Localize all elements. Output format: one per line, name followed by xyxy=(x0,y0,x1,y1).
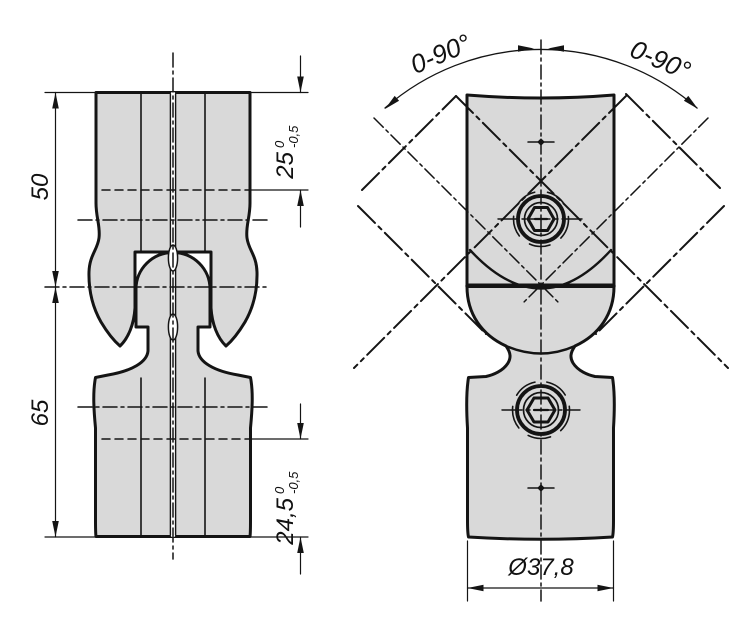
angle-right-label: 0-90° xyxy=(626,34,695,86)
dimension-50-65: 50 65 xyxy=(27,93,59,538)
drawing-canvas: 50 65 25 0 -0,5 24,5 0 xyxy=(0,0,750,618)
dim-50-label: 50 xyxy=(27,173,54,200)
dim-24-5-tol-upper: 0 xyxy=(272,486,287,494)
left-view: 50 65 25 0 -0,5 24,5 0 xyxy=(27,53,308,574)
dim-65-label: 65 xyxy=(27,399,54,426)
right-view: 0-90° 0-90° xyxy=(354,28,728,601)
dim-25-tol-lower: -0,5 xyxy=(286,125,301,148)
technical-drawing-page: 50 65 25 0 -0,5 24,5 0 xyxy=(0,0,750,618)
diameter-label: Ø37,8 xyxy=(507,554,574,581)
dimension-24-5: 24,5 0 -0,5 xyxy=(272,404,304,574)
phantom-end-face-left xyxy=(362,96,456,190)
dimension-25: 25 0 -0,5 xyxy=(272,56,304,227)
dim-24-5-tol-lower: -0,5 xyxy=(286,471,301,494)
phantom-end-face-right xyxy=(626,94,720,188)
dim-25-value: 25 xyxy=(272,151,299,179)
dim-25-tol-upper: 0 xyxy=(272,140,287,148)
dim-24-5-value: 24,5 xyxy=(272,497,299,545)
